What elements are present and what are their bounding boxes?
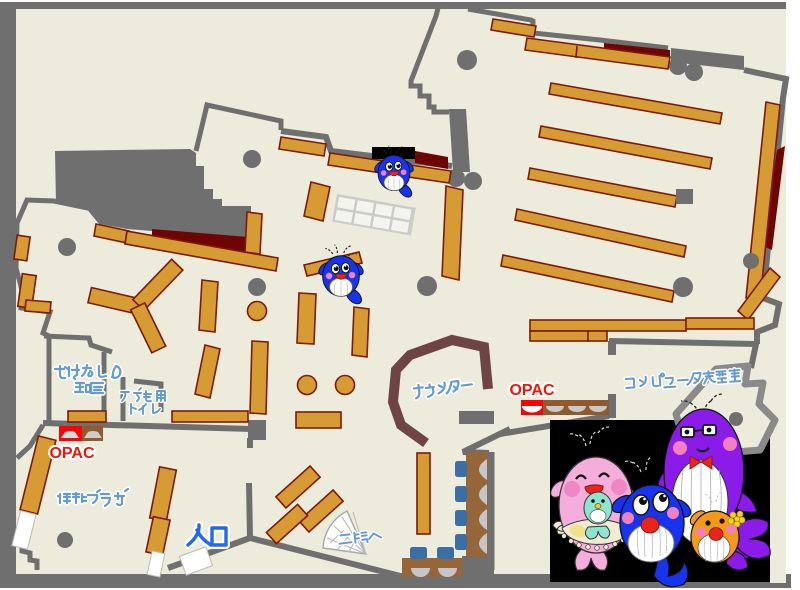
svg-text:OPAC: OPAC xyxy=(49,445,94,462)
svg-text:OPAC: OPAC xyxy=(509,382,554,399)
